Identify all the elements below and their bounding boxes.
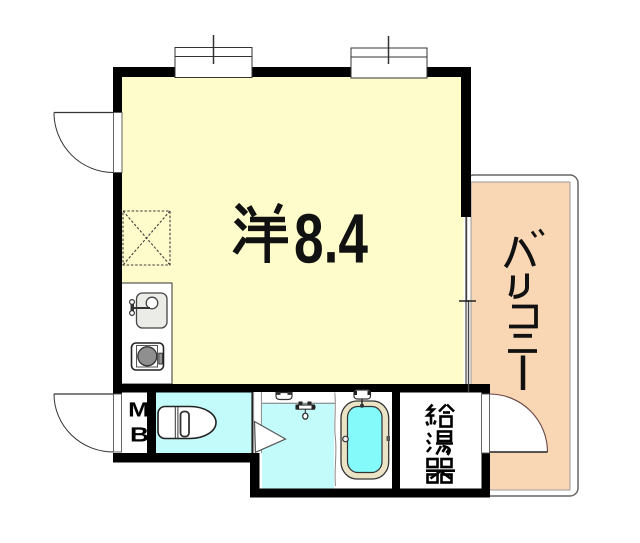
svg-text:B: B xyxy=(130,424,149,447)
svg-text:8.4: 8.4 xyxy=(294,200,368,278)
svg-text:M: M xyxy=(128,399,149,422)
